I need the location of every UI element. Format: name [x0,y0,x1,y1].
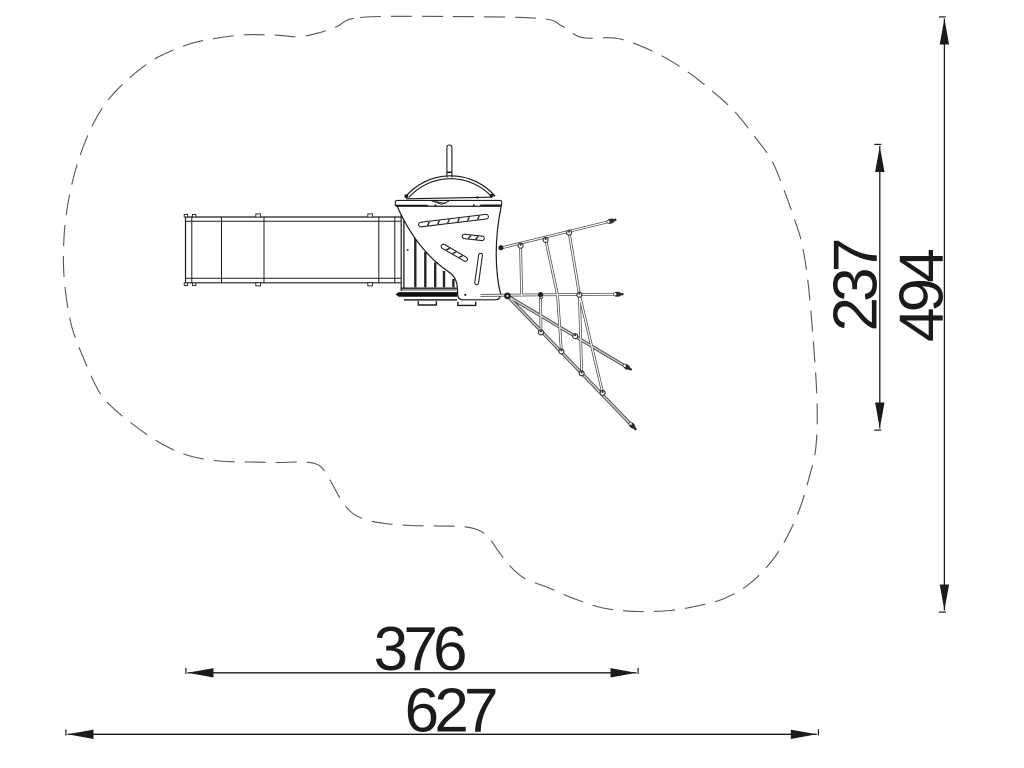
svg-text:237: 237 [822,240,891,331]
svg-text:494: 494 [888,250,957,342]
svg-text:376: 376 [374,615,465,684]
svg-text:627: 627 [405,677,496,746]
